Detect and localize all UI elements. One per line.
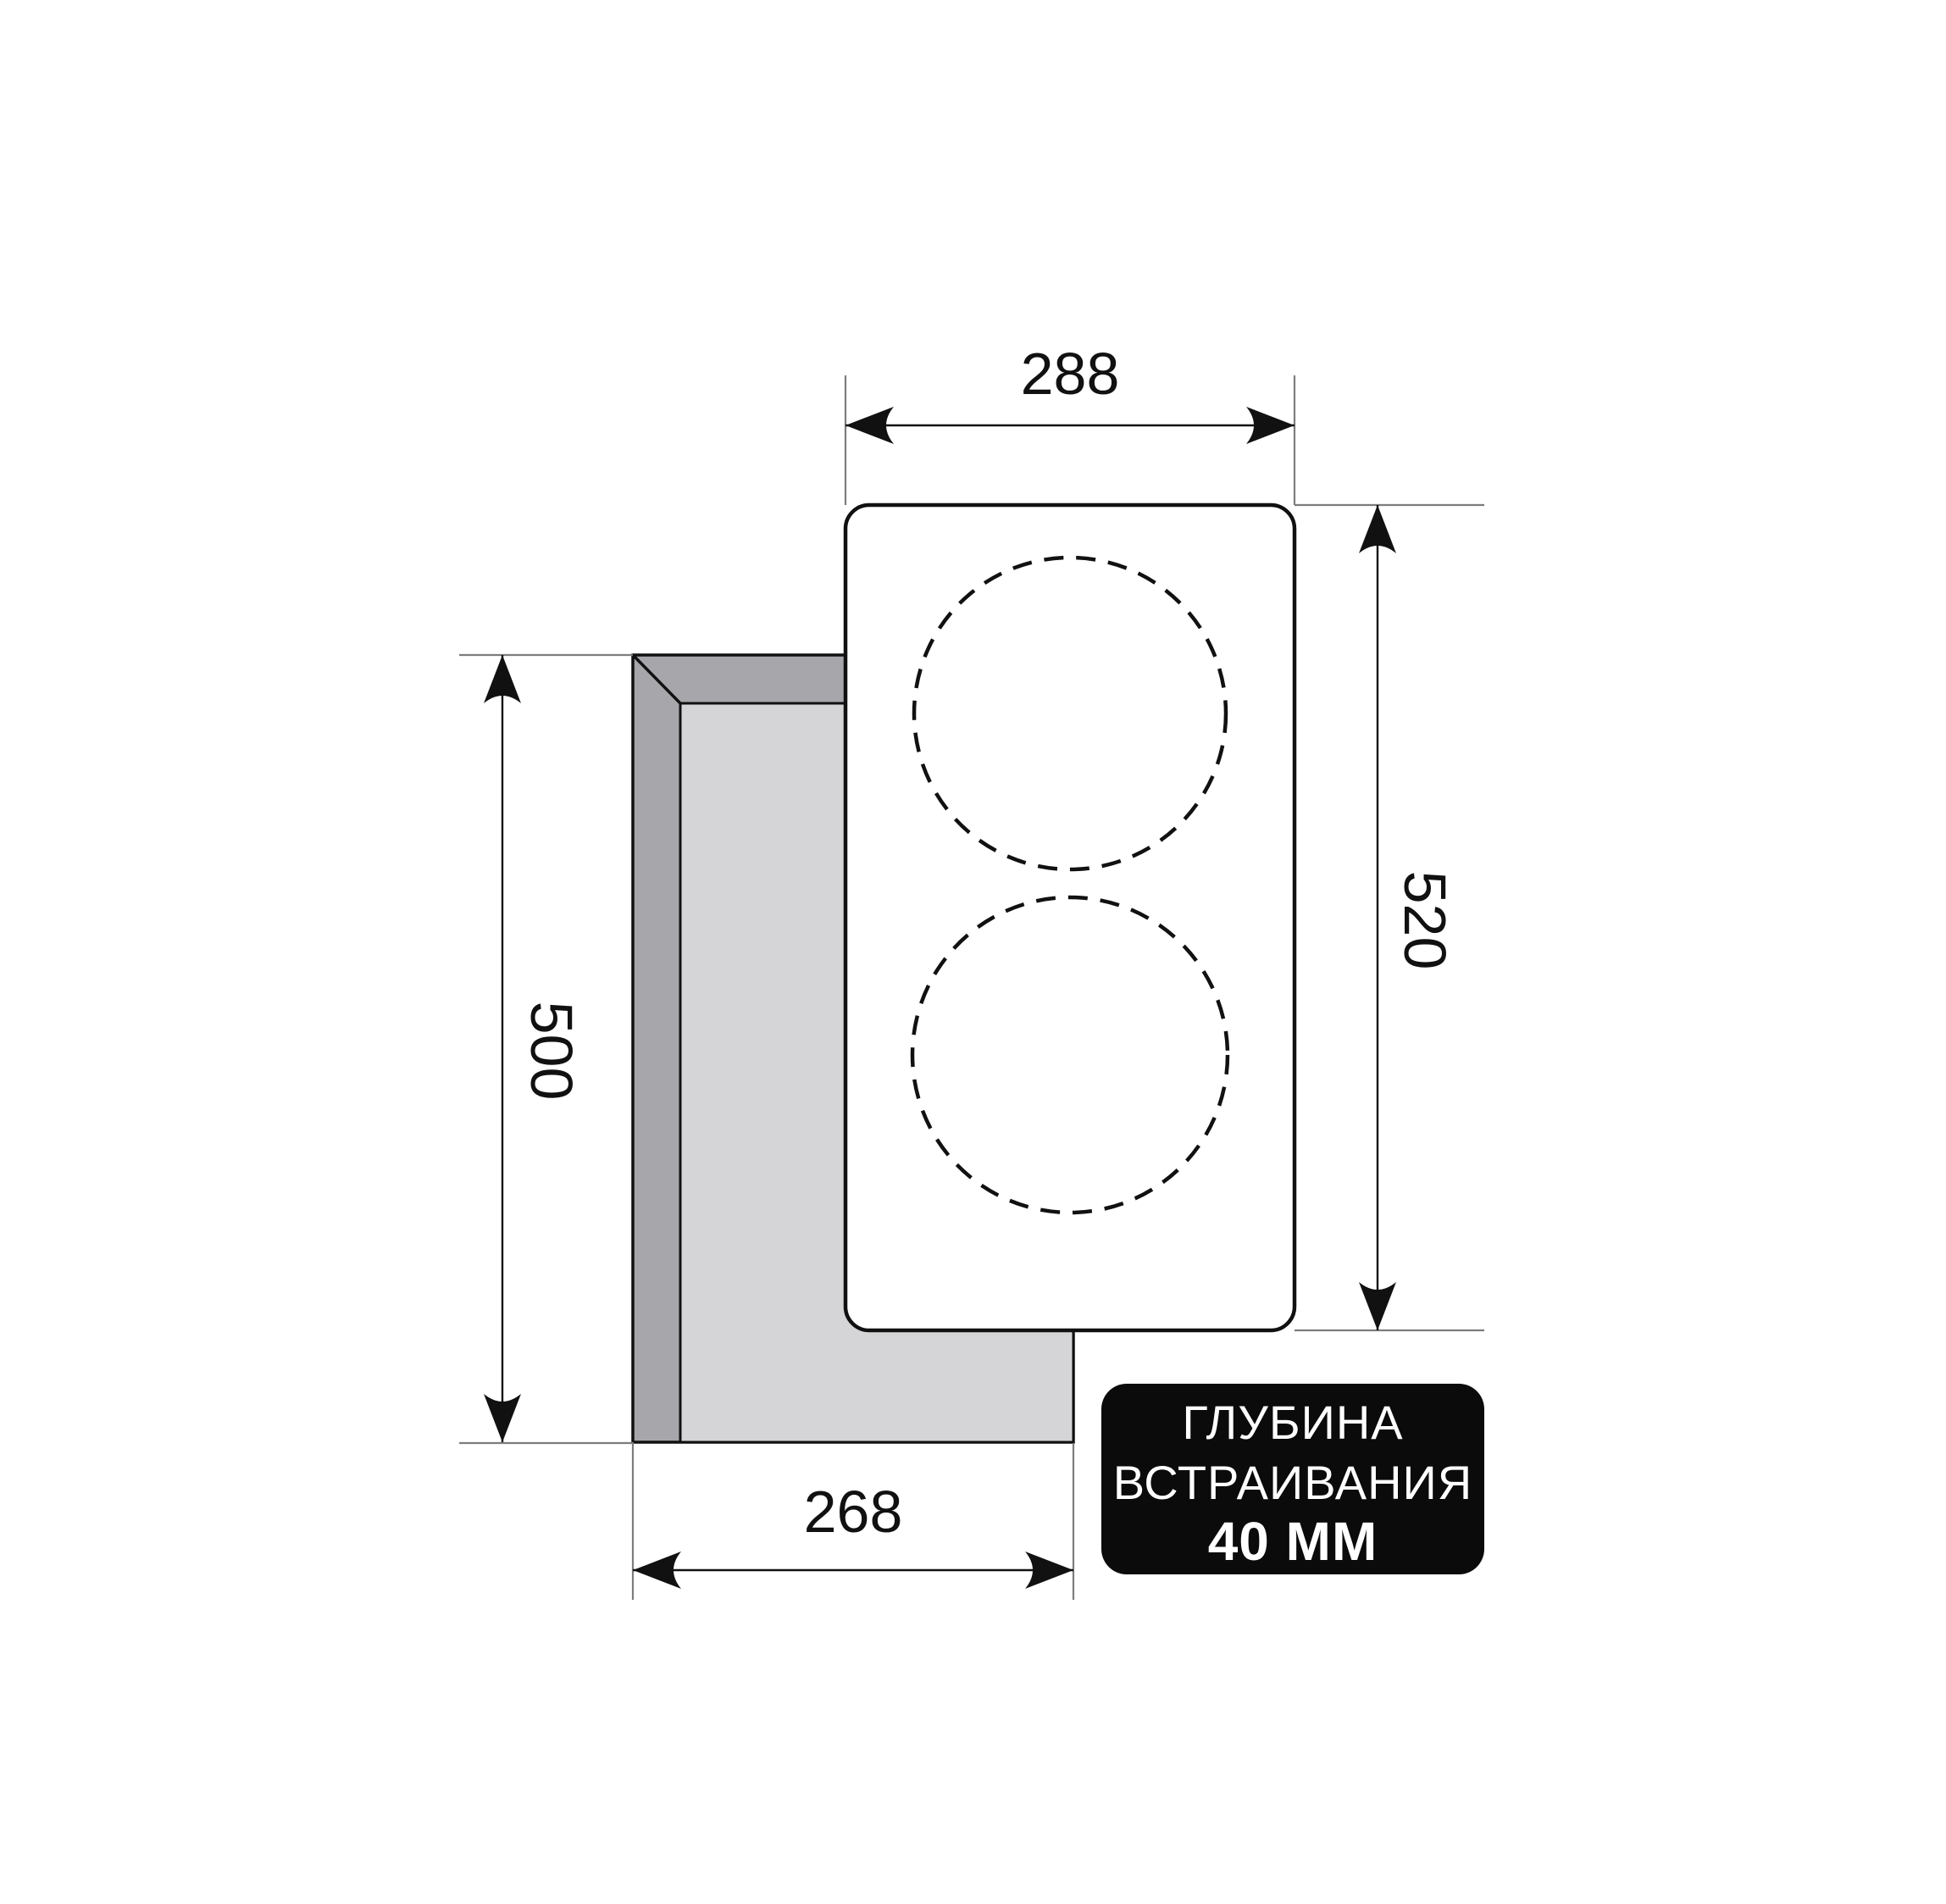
dim-label-top-width: 288 [1021, 341, 1120, 407]
dimension-left-height: 500 [459, 655, 633, 1443]
cooktop-installation-diagram: 288 520 500 268 [0, 0, 1946, 1904]
badge-line2: ВСТРАИВАНИЯ [1113, 1456, 1472, 1509]
diagram-svg: 288 520 500 268 [0, 0, 1946, 1904]
hob-outline [845, 505, 1295, 1330]
badge-depth-value: 40 ММ [1208, 1511, 1378, 1572]
dimension-right-height: 520 [1295, 505, 1484, 1330]
hob-top-view [845, 505, 1295, 1330]
badge-line1: ГЛУБИНА [1182, 1396, 1403, 1449]
dim-label-left-height: 500 [518, 1002, 585, 1101]
dimension-bottom-width: 268 [633, 1442, 1073, 1600]
dim-label-bottom-width: 268 [804, 1479, 903, 1545]
dimension-top-width: 288 [845, 341, 1295, 505]
dim-label-right-height: 520 [1392, 871, 1458, 970]
depth-badge: ГЛУБИНА ВСТРАИВАНИЯ 40 ММ [1101, 1384, 1484, 1574]
